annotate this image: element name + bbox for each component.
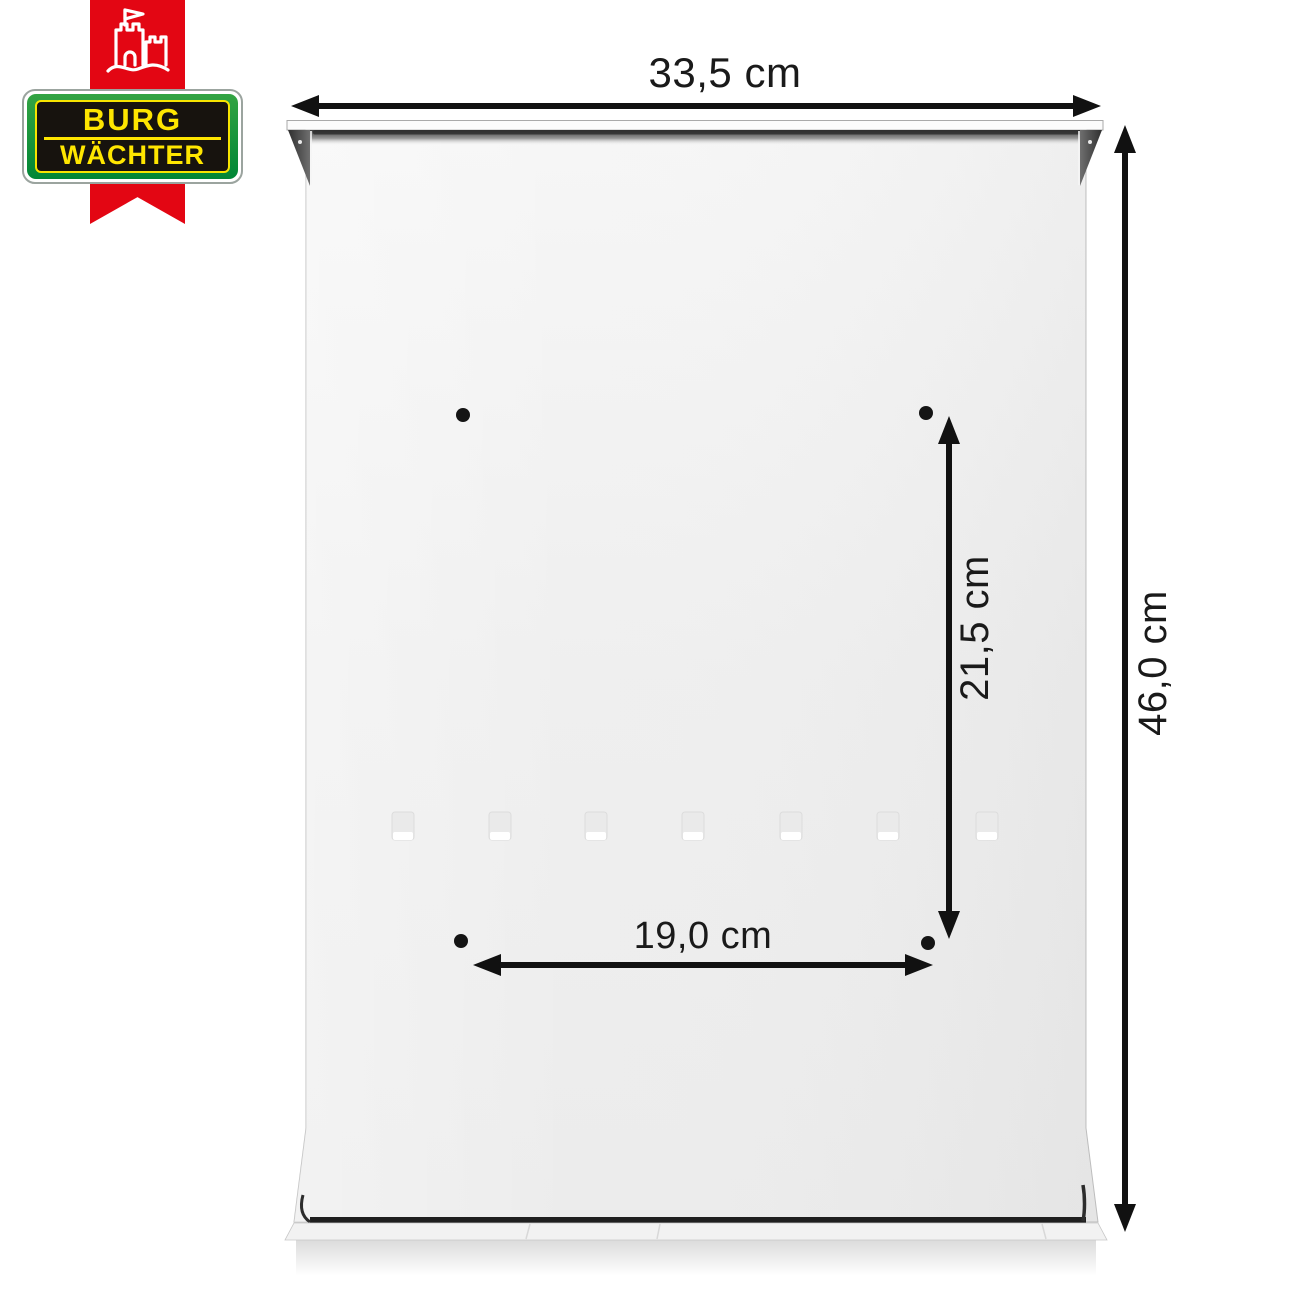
mounting-hole-top-right bbox=[919, 406, 933, 420]
ventilation-slot bbox=[392, 812, 414, 840]
mounting-hole-bottom-left bbox=[454, 934, 468, 948]
bottom-hook-right bbox=[1083, 1185, 1085, 1221]
ventilation-slot bbox=[682, 812, 704, 840]
ventilation-slot bbox=[585, 812, 607, 840]
mailbox-top-flange bbox=[287, 121, 1103, 131]
mailbox-illustration bbox=[0, 0, 1300, 1300]
ventilation-slot bbox=[877, 812, 899, 840]
box-drop-shadow bbox=[296, 1240, 1096, 1276]
top-lip-line bbox=[313, 130, 1083, 135]
corner-bracket-left bbox=[288, 130, 310, 186]
width-dimension-label: 33,5 cm bbox=[575, 51, 875, 95]
mounting-hole-bottom-right bbox=[921, 936, 935, 950]
ventilation-slot bbox=[489, 812, 511, 840]
ventilation-slot bbox=[976, 812, 998, 840]
bottom-fold-line bbox=[310, 1217, 1086, 1223]
height-dimension-label: 46,0 cm bbox=[1131, 513, 1175, 813]
rivet-right-icon bbox=[1088, 140, 1092, 144]
mailbox-bottom-flange bbox=[285, 1223, 1107, 1240]
mounting-hole-top-left bbox=[456, 408, 470, 422]
width-dimension-arrow bbox=[291, 95, 1101, 117]
product-diagram-stage: BURG WÄCHTER bbox=[0, 0, 1300, 1300]
vertical-hole-spacing-label: 21,5 cm bbox=[953, 478, 997, 778]
ventilation-slot bbox=[780, 812, 802, 840]
rivet-left-icon bbox=[298, 140, 302, 144]
horizontal-hole-spacing-label: 19,0 cm bbox=[553, 914, 853, 958]
